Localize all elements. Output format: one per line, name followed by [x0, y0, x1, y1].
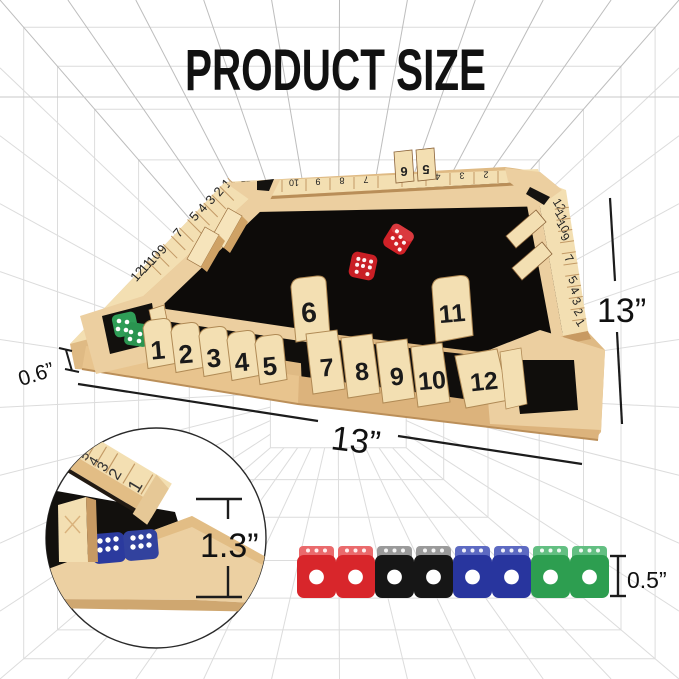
- svg-text:13”: 13”: [329, 419, 382, 463]
- svg-text:3: 3: [459, 171, 464, 181]
- svg-text:7: 7: [363, 175, 368, 185]
- svg-text:4: 4: [435, 172, 440, 182]
- svg-text:1: 1: [149, 334, 166, 365]
- svg-text:13”: 13”: [597, 292, 646, 330]
- svg-text:5: 5: [261, 350, 278, 381]
- svg-text:9: 9: [315, 177, 320, 187]
- svg-text:8: 8: [354, 357, 370, 386]
- svg-text:6: 6: [400, 164, 407, 179]
- svg-text:5: 5: [422, 162, 429, 177]
- svg-text:3: 3: [205, 342, 222, 373]
- svg-text:9: 9: [389, 362, 405, 391]
- svg-text:10: 10: [289, 178, 299, 188]
- svg-text:0.5”: 0.5”: [627, 567, 667, 593]
- svg-text:1.3”: 1.3”: [200, 527, 259, 565]
- svg-text:8: 8: [339, 176, 344, 186]
- svg-text:11: 11: [438, 299, 467, 329]
- svg-text:10: 10: [417, 366, 447, 396]
- svg-text:2: 2: [177, 338, 194, 369]
- svg-text:12: 12: [469, 367, 500, 398]
- svg-text:6: 6: [300, 296, 318, 328]
- svg-text:7: 7: [319, 353, 335, 382]
- svg-text:2: 2: [483, 170, 488, 180]
- svg-text:PRODUCT SIZE: PRODUCT SIZE: [185, 38, 486, 103]
